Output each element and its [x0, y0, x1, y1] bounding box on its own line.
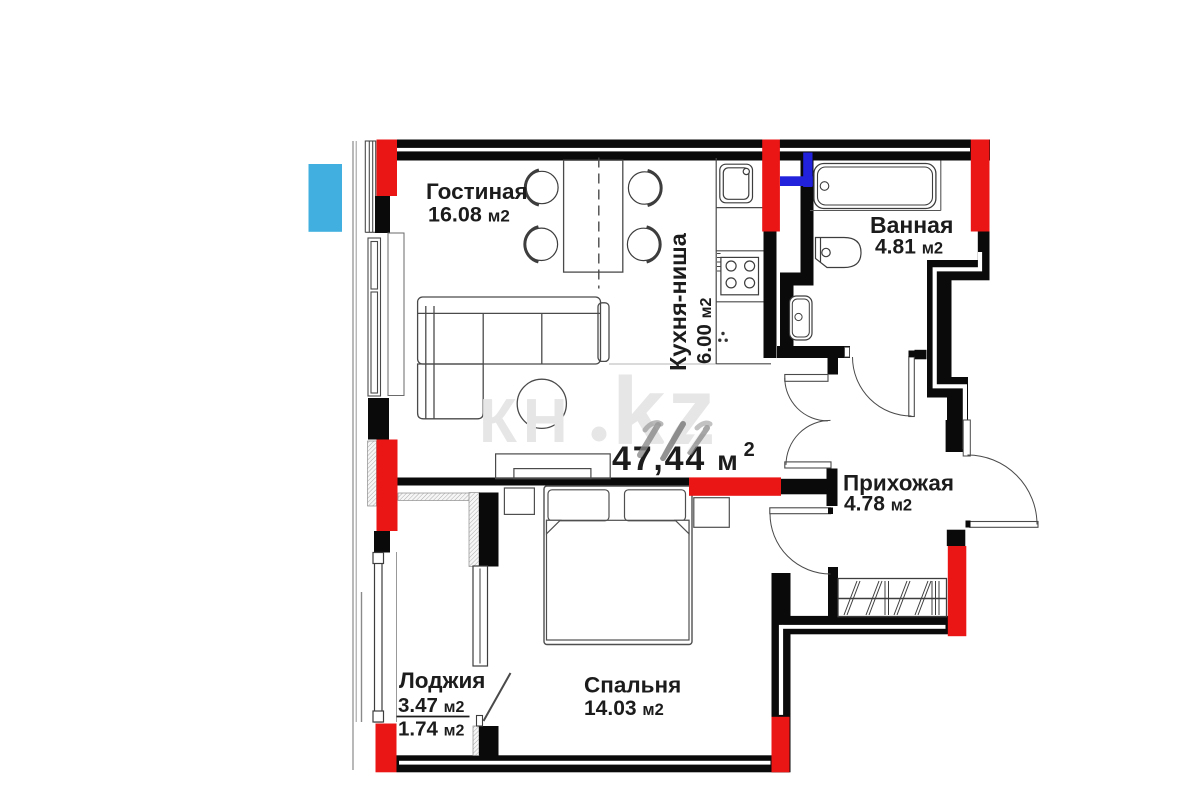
svg-text:Спальня: Спальня: [584, 673, 681, 698]
svg-text:Кухня-ниша: Кухня-ниша: [665, 232, 691, 371]
svg-text:Гостиная: Гостиная: [426, 179, 528, 204]
svg-text:Ванная: Ванная: [870, 212, 953, 238]
svg-text:47,44м2: 47,44м2: [612, 439, 757, 478]
svg-text:14.03 м2: 14.03 м2: [584, 697, 664, 720]
svg-text:16.08 м2: 16.08 м2: [428, 203, 510, 227]
svg-text:4.81 м2: 4.81 м2: [875, 236, 943, 259]
svg-text:4.78 м2: 4.78 м2: [844, 493, 912, 516]
svg-text:Лоджия: Лоджия: [399, 668, 485, 693]
svg-text:КН: КН: [479, 387, 574, 456]
